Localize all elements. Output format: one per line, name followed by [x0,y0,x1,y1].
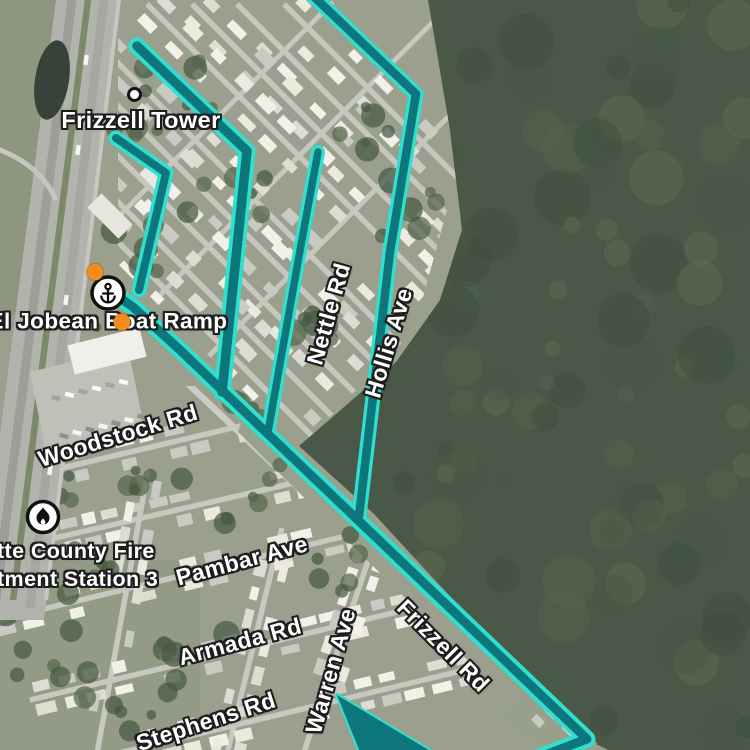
fire-station-label-line2: tment Station 3 [0,566,158,594]
poi-label-fire-station[interactable]: tte County Fire tment Station 3 [0,538,158,593]
poi-label-frizzell-tower[interactable]: Frizzell Tower [61,108,220,134]
fire-station-marker[interactable] [21,495,65,544]
tower-dot-marker[interactable] [127,87,142,102]
orange-dot-marker-1[interactable] [85,262,105,287]
orange-dot-marker-2[interactable] [112,312,132,337]
map-viewport[interactable]: Woodstock Rd Pambar Ave Armada Rd Stephe… [0,0,750,750]
